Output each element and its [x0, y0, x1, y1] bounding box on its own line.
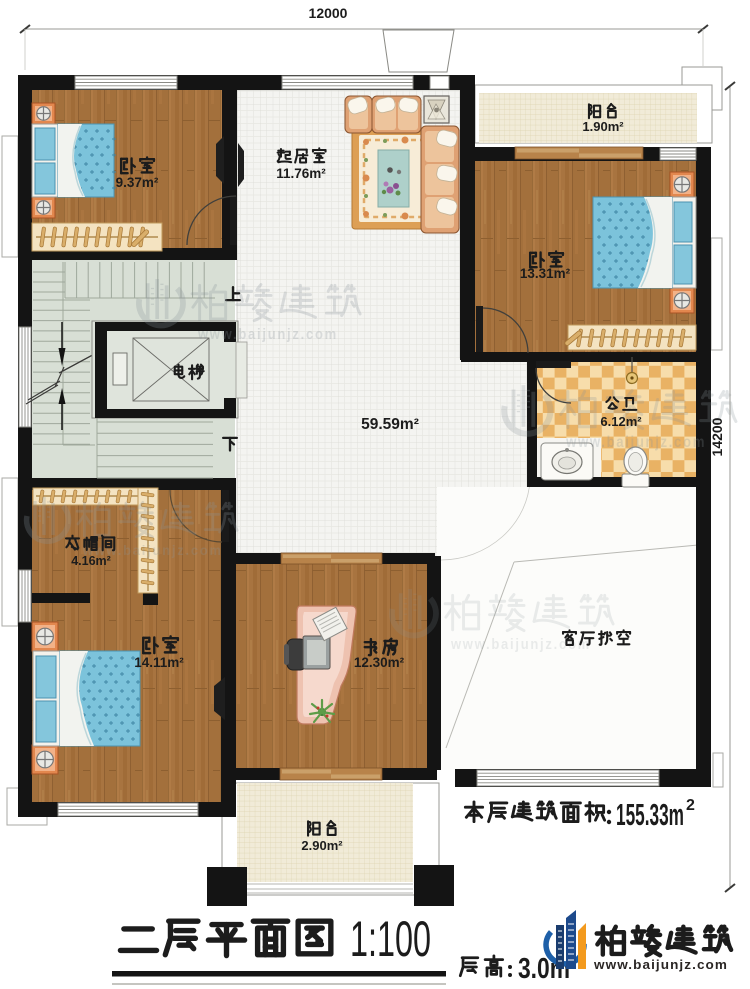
svg-text:4.16m²: 4.16m²: [71, 554, 111, 568]
svg-text:www.baijunjz.com: www.baijunjz.com: [197, 326, 338, 343]
svg-text:14200: 14200: [709, 417, 725, 456]
svg-text:12.30m²: 12.30m²: [354, 655, 405, 670]
svg-text:6.12m²: 6.12m²: [600, 414, 642, 429]
svg-text:12000: 12000: [309, 5, 348, 21]
svg-text:9.37m²: 9.37m²: [116, 175, 159, 190]
svg-text:2: 2: [686, 797, 695, 814]
svg-text:155.33m: 155.33m: [616, 797, 684, 832]
svg-text:1:100: 1:100: [350, 911, 431, 967]
svg-text:www.baijunjz.com: www.baijunjz.com: [593, 958, 728, 972]
svg-text:59.59m²: 59.59m²: [361, 416, 419, 433]
svg-text:13.31m²: 13.31m²: [520, 266, 571, 281]
svg-text:2.90m²: 2.90m²: [301, 838, 343, 853]
svg-text:11.76m²: 11.76m²: [276, 166, 326, 181]
svg-text:14.11m²: 14.11m²: [134, 655, 184, 670]
svg-text:1.90m²: 1.90m²: [582, 119, 624, 134]
svg-text:www.baijunjz.com: www.baijunjz.com: [565, 434, 706, 451]
